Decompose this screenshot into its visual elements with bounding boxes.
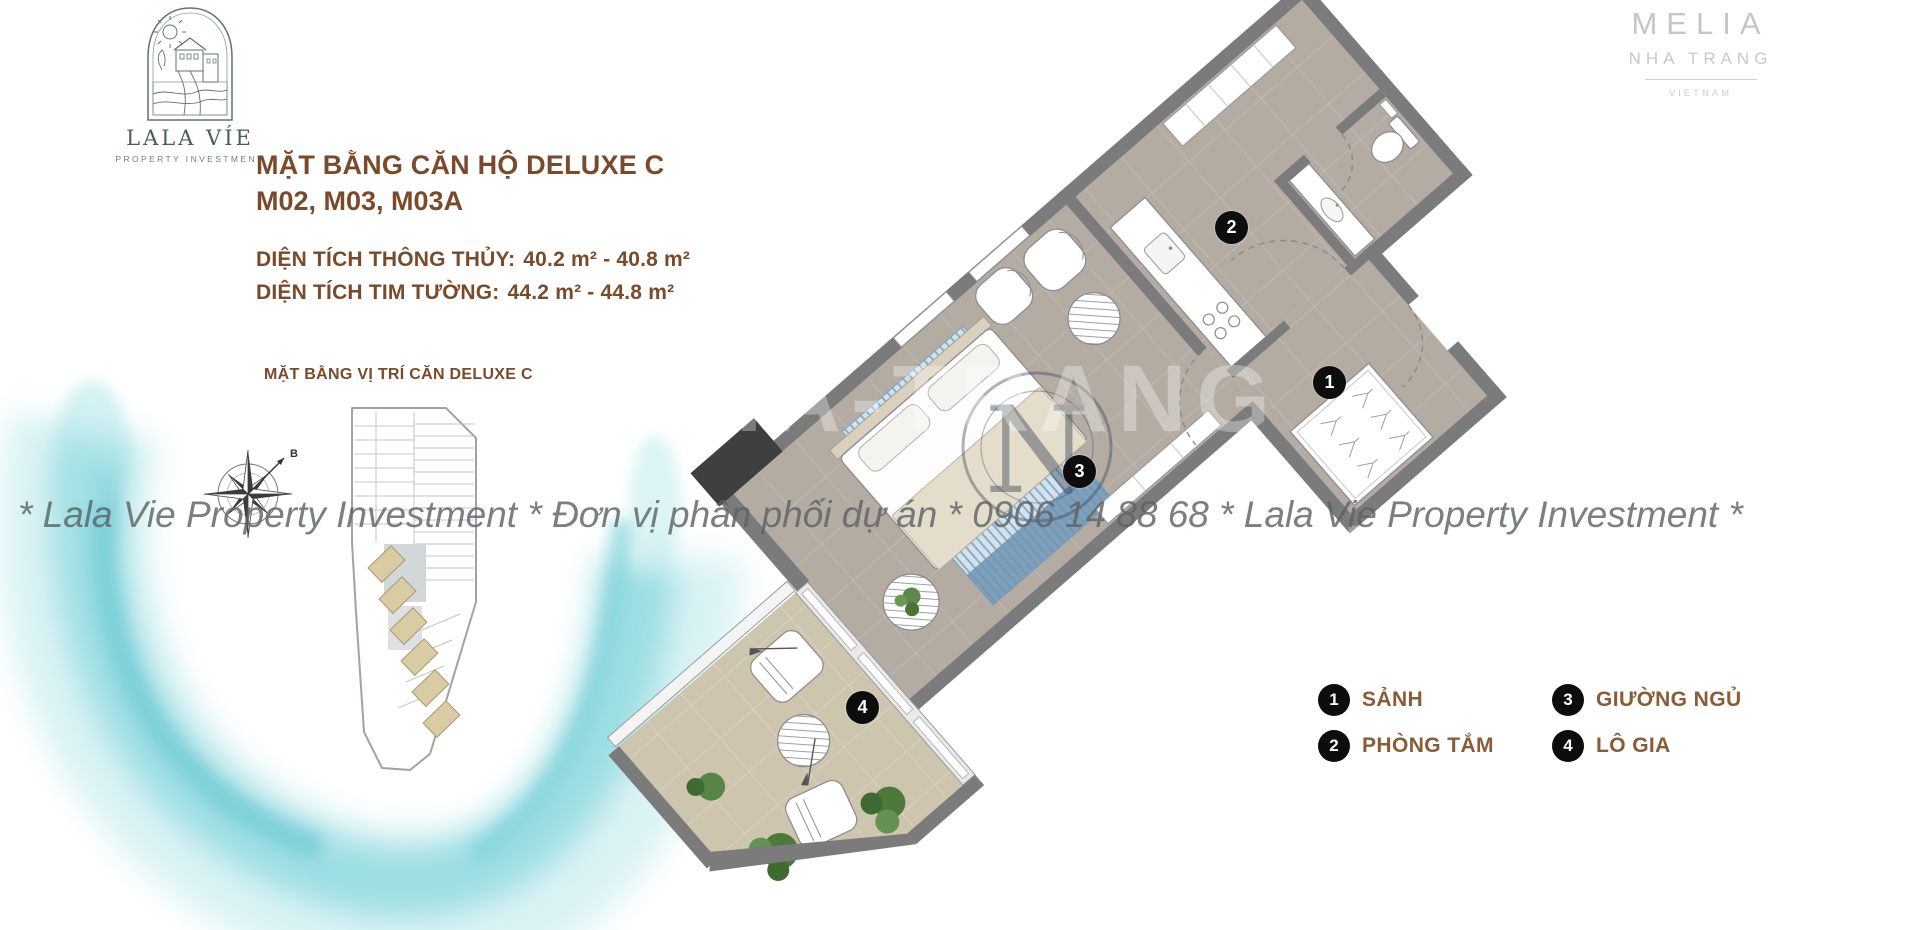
- melia-title: MELIA: [1608, 6, 1793, 42]
- melia-divider: [1645, 79, 1757, 80]
- legend-item-lo-gia: 4 LÔ GIA: [1552, 730, 1742, 762]
- legend-marker-4: 4: [1552, 730, 1584, 762]
- plan-marker-2: 2: [1215, 211, 1248, 244]
- melia-country: VIETNAM: [1608, 88, 1793, 99]
- legend-item-giuong-ngu: 3 GIƯỜNG NGỦ: [1552, 684, 1742, 716]
- plan-marker-1: 1: [1313, 366, 1346, 399]
- legend-item-sanh: 1 SẢNH: [1318, 684, 1494, 716]
- legend-marker-1: 1: [1318, 684, 1350, 716]
- legend-column-2: 3 GIƯỜNG NGỦ 4 LÔ GIA: [1552, 684, 1742, 776]
- legend-column-1: 1 SẢNH 2 PHÒNG TẮM: [1318, 684, 1494, 776]
- plan-marker-4: 4: [846, 691, 879, 724]
- legend-marker-3: 3: [1552, 684, 1584, 716]
- apartment-floor-plan: N: [0, 0, 1920, 930]
- background-watermark: NHA-TRANG: [615, 345, 1280, 454]
- floorplan-brochure: LALA VÍE PROPERTY INVESTMENT MẶT BẰNG CĂ…: [0, 0, 1920, 930]
- distributor-watermark: * Lala Vie Property Investment * Đơn vị …: [18, 494, 1918, 536]
- legend-item-phong-tam: 2 PHÒNG TẮM: [1318, 730, 1494, 762]
- melia-logo: MELIA NHA TRANG VIETNAM: [1608, 6, 1793, 99]
- melia-subtitle: NHA TRANG: [1608, 49, 1793, 69]
- plan-marker-3: 3: [1063, 455, 1096, 488]
- legend-marker-2: 2: [1318, 730, 1350, 762]
